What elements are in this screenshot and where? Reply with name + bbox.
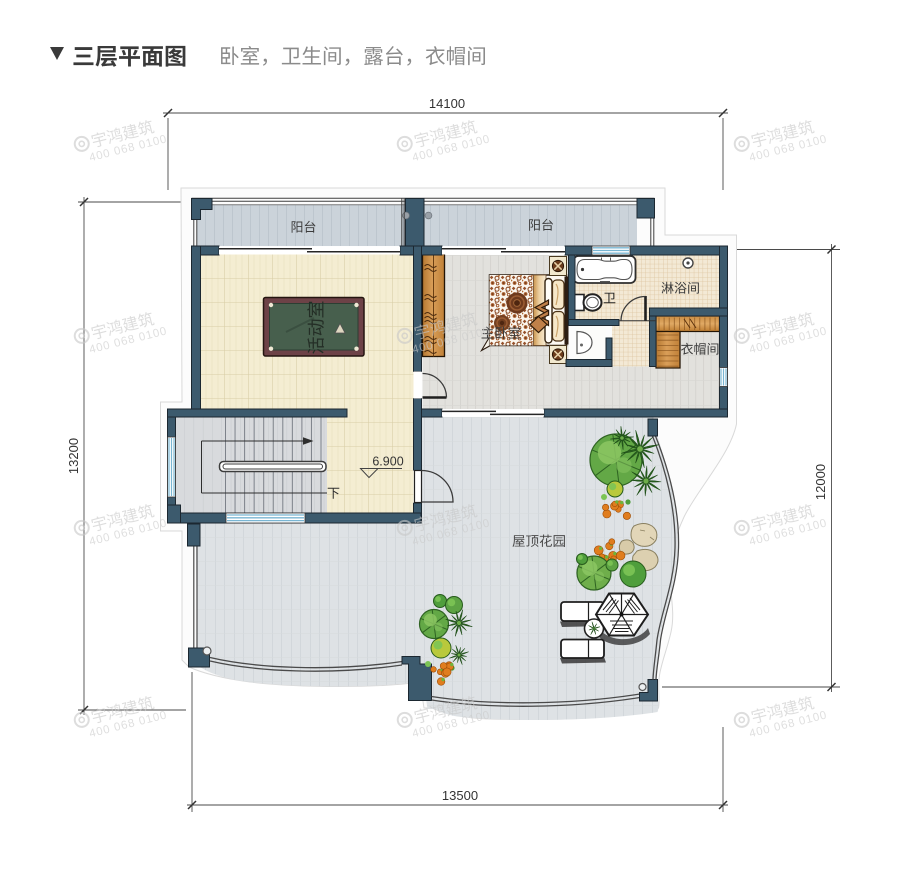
svg-text:6.900: 6.900 — [372, 455, 403, 469]
svg-text:12000: 12000 — [813, 464, 828, 500]
svg-text:14100: 14100 — [429, 96, 465, 111]
svg-text:13200: 13200 — [66, 438, 81, 474]
svg-text:13500: 13500 — [442, 788, 478, 803]
